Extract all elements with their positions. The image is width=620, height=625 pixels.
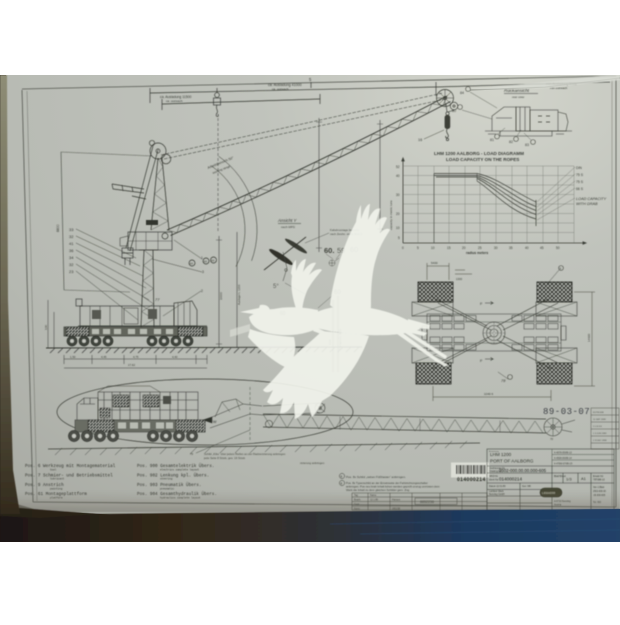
svg-text:60.: 60. bbox=[324, 246, 334, 255]
svg-text:4,40: 4,40 bbox=[172, 355, 178, 359]
svg-text:0: 0 bbox=[402, 246, 404, 250]
svg-text:60: 60 bbox=[204, 260, 208, 264]
svg-text:nach MFG: nach MFG bbox=[281, 225, 296, 229]
svg-text:lubricant: lubricant bbox=[50, 477, 64, 481]
svg-text:Pos. 902 Lenkung kpl. Übers.: Pos. 902 Lenkung kpl. Übers. bbox=[137, 473, 209, 478]
svg-text:1,50: 1,50 bbox=[70, 355, 76, 359]
svg-text:75 S: 75 S bbox=[576, 180, 584, 184]
svg-text:8800: 8800 bbox=[56, 224, 60, 232]
svg-text:40: 40 bbox=[396, 174, 400, 178]
svg-text:32: 32 bbox=[69, 262, 74, 267]
svg-text:painting: painting bbox=[50, 486, 63, 490]
svg-text:79T088-13: 79T088-13 bbox=[593, 479, 605, 482]
svg-text:4-470M-07/89-15: 4-470M-07/89-15 bbox=[554, 463, 573, 466]
svg-text:36: 36 bbox=[69, 248, 74, 253]
svg-text:PORT OF AALBORG: PORT OF AALBORG bbox=[490, 459, 534, 464]
svg-text:10: 10 bbox=[396, 226, 400, 230]
svg-text:1300: 1300 bbox=[456, 277, 463, 281]
svg-text:steering: steering bbox=[160, 477, 173, 481]
svg-text:83 PM 088: 83 PM 088 bbox=[593, 412, 604, 414]
svg-text:Datum 12.01.89: Datum 12.01.89 bbox=[489, 485, 506, 488]
svg-text:tool: tool bbox=[50, 467, 57, 471]
svg-text:84: 84 bbox=[460, 91, 464, 95]
svg-text:2: 2 bbox=[201, 289, 203, 293]
svg-text:41: 41 bbox=[69, 241, 74, 246]
svg-text:66 S: 66 S bbox=[576, 187, 584, 191]
svg-text:40: 40 bbox=[525, 246, 529, 250]
svg-text:Gez. MK: Gez. MK bbox=[522, 486, 531, 488]
svg-text:89-03-07: 89-03-07 bbox=[543, 407, 590, 417]
svg-text:WITH GRAB: WITH GRAB bbox=[576, 202, 598, 206]
svg-text:5: 5 bbox=[398, 236, 400, 240]
svg-text:33: 33 bbox=[69, 227, 74, 232]
svg-text:77: 77 bbox=[155, 297, 160, 302]
svg-text:25: 25 bbox=[478, 246, 482, 250]
svg-text:60: 60 bbox=[211, 259, 215, 263]
svg-text:ntrierung anbringen: ntrierung anbringen bbox=[300, 461, 325, 465]
svg-text:11 SEP 1989: 11 SEP 1989 bbox=[593, 419, 606, 421]
svg-text:52: 52 bbox=[396, 165, 400, 169]
svg-text:35: 35 bbox=[509, 246, 513, 250]
svg-text:1 3 JUN 1989: 1 3 JUN 1989 bbox=[593, 433, 607, 435]
svg-text:radius meters: radius meters bbox=[466, 251, 488, 255]
svg-text:LOAD CAPACITY ON THE ROPES: LOAD CAPACITY ON THE ROPES bbox=[446, 157, 519, 162]
svg-text:81: 81 bbox=[490, 138, 494, 142]
svg-text:Blatt/Sheet: Blatt/Sheet bbox=[554, 475, 566, 478]
svg-text:jede Seite 8 Stück, ges. 16 St: jede Seite 8 Stück, ges. 16 Stück bbox=[203, 456, 246, 460]
svg-text:20: 20 bbox=[462, 246, 466, 250]
svg-text:rear view: rear view bbox=[512, 95, 525, 99]
svg-text:30: 30 bbox=[396, 193, 400, 197]
svg-text:LHM 1200 AALBORG - LOAD DIAGRA: LHM 1200 AALBORG - LOAD DIAGRAMM bbox=[434, 151, 524, 156]
svg-text:1/3: 1/3 bbox=[566, 477, 572, 482]
svg-text:23: 23 bbox=[69, 269, 74, 274]
svg-text:V 0 8 8 8: V 0 8 8 8 bbox=[593, 426, 603, 428]
svg-text:5: 5 bbox=[417, 246, 419, 250]
svg-text:70: 70 bbox=[550, 437, 554, 441]
svg-text:A1: A1 bbox=[581, 476, 587, 481]
svg-text:4,75: 4,75 bbox=[133, 355, 139, 359]
svg-text:Auslegerh. 1200: Auslegerh. 1200 bbox=[237, 284, 241, 305]
svg-text:32: 32 bbox=[69, 234, 74, 239]
svg-text:3: 3 bbox=[202, 270, 204, 274]
svg-text:ca. outreach: ca. outreach bbox=[166, 99, 183, 103]
svg-text:15: 15 bbox=[447, 246, 451, 250]
svg-text:78: 78 bbox=[501, 378, 506, 383]
svg-text:014000214: 014000214 bbox=[457, 477, 486, 483]
svg-text:capacity in metric tons: capacity in metric tons bbox=[389, 200, 393, 230]
svg-text:LOAD CAPACITY: LOAD CAPACITY bbox=[576, 197, 607, 201]
svg-text:3,90: 3,90 bbox=[44, 324, 48, 330]
svg-text:1040 6: 1040 6 bbox=[484, 392, 494, 396]
svg-text:DIN: DIN bbox=[576, 166, 582, 170]
svg-text:30: 30 bbox=[494, 246, 498, 250]
svg-text:pneumatic: pneumatic bbox=[160, 486, 174, 490]
svg-text:2 9 DEZ 1988: 2 9 DEZ 1988 bbox=[593, 440, 607, 442]
svg-text:45: 45 bbox=[540, 246, 544, 250]
svg-text:LHM 1200: LHM 1200 bbox=[490, 452, 512, 457]
svg-text:Pos. 6 Werkzeug mit Montagema: Pos. 6 Werkzeug mit Montagematerial bbox=[25, 464, 116, 469]
svg-text:Ident-No.: Ident-No. bbox=[489, 479, 499, 482]
svg-text:Pos. 8x Schild „neben Füßhast: Pos. 8x Schild „neben Füßhaster“ anbring… bbox=[346, 475, 406, 479]
svg-text:Ansicht Y: Ansicht Y bbox=[277, 218, 298, 223]
svg-text:5400: 5400 bbox=[431, 261, 438, 265]
svg-text:14600: 14600 bbox=[587, 333, 591, 342]
svg-text:83: 83 bbox=[525, 143, 529, 147]
svg-text:50: 50 bbox=[556, 246, 560, 250]
svg-text:80: 80 bbox=[452, 109, 456, 113]
svg-text:Von 1.Blatt: Von 1.Blatt bbox=[593, 486, 604, 489]
svg-text:34: 34 bbox=[69, 255, 74, 260]
svg-text:W: W bbox=[213, 420, 217, 424]
svg-text:electrics complete layout: electrics complete layout bbox=[160, 467, 199, 471]
svg-text:17,62: 17,62 bbox=[128, 363, 135, 367]
svg-text:ca. outreach: ca. outreach bbox=[272, 87, 289, 91]
svg-text:75 S: 75 S bbox=[576, 173, 584, 177]
svg-text:Pos. 7 Schmier- und Betriebsm: Pos. 7 Schmier- und Betriebsmittel bbox=[25, 473, 113, 478]
svg-text:1: 1 bbox=[201, 256, 203, 260]
svg-text:16: 16 bbox=[418, 138, 422, 142]
svg-text:10000: 10000 bbox=[219, 292, 223, 300]
svg-text:4,45: 4,45 bbox=[101, 355, 107, 359]
svg-text:60: 60 bbox=[190, 262, 194, 266]
svg-text:79: 79 bbox=[190, 452, 194, 456]
svg-text:4-4678-05/89-13: 4-4678-05/89-13 bbox=[554, 452, 572, 455]
svg-text:4-4508-06/89-14: 4-4508-06/89-14 bbox=[554, 457, 572, 460]
svg-text:82: 82 bbox=[509, 140, 513, 144]
svg-text:20: 20 bbox=[396, 212, 400, 216]
svg-text:5°: 5° bbox=[273, 284, 279, 290]
svg-text:10: 10 bbox=[431, 246, 435, 250]
svg-text:014000214: 014000214 bbox=[499, 477, 522, 482]
svg-text:2502-000.00.00.000-605: 2502-000.00.00.000-605 bbox=[499, 468, 547, 473]
